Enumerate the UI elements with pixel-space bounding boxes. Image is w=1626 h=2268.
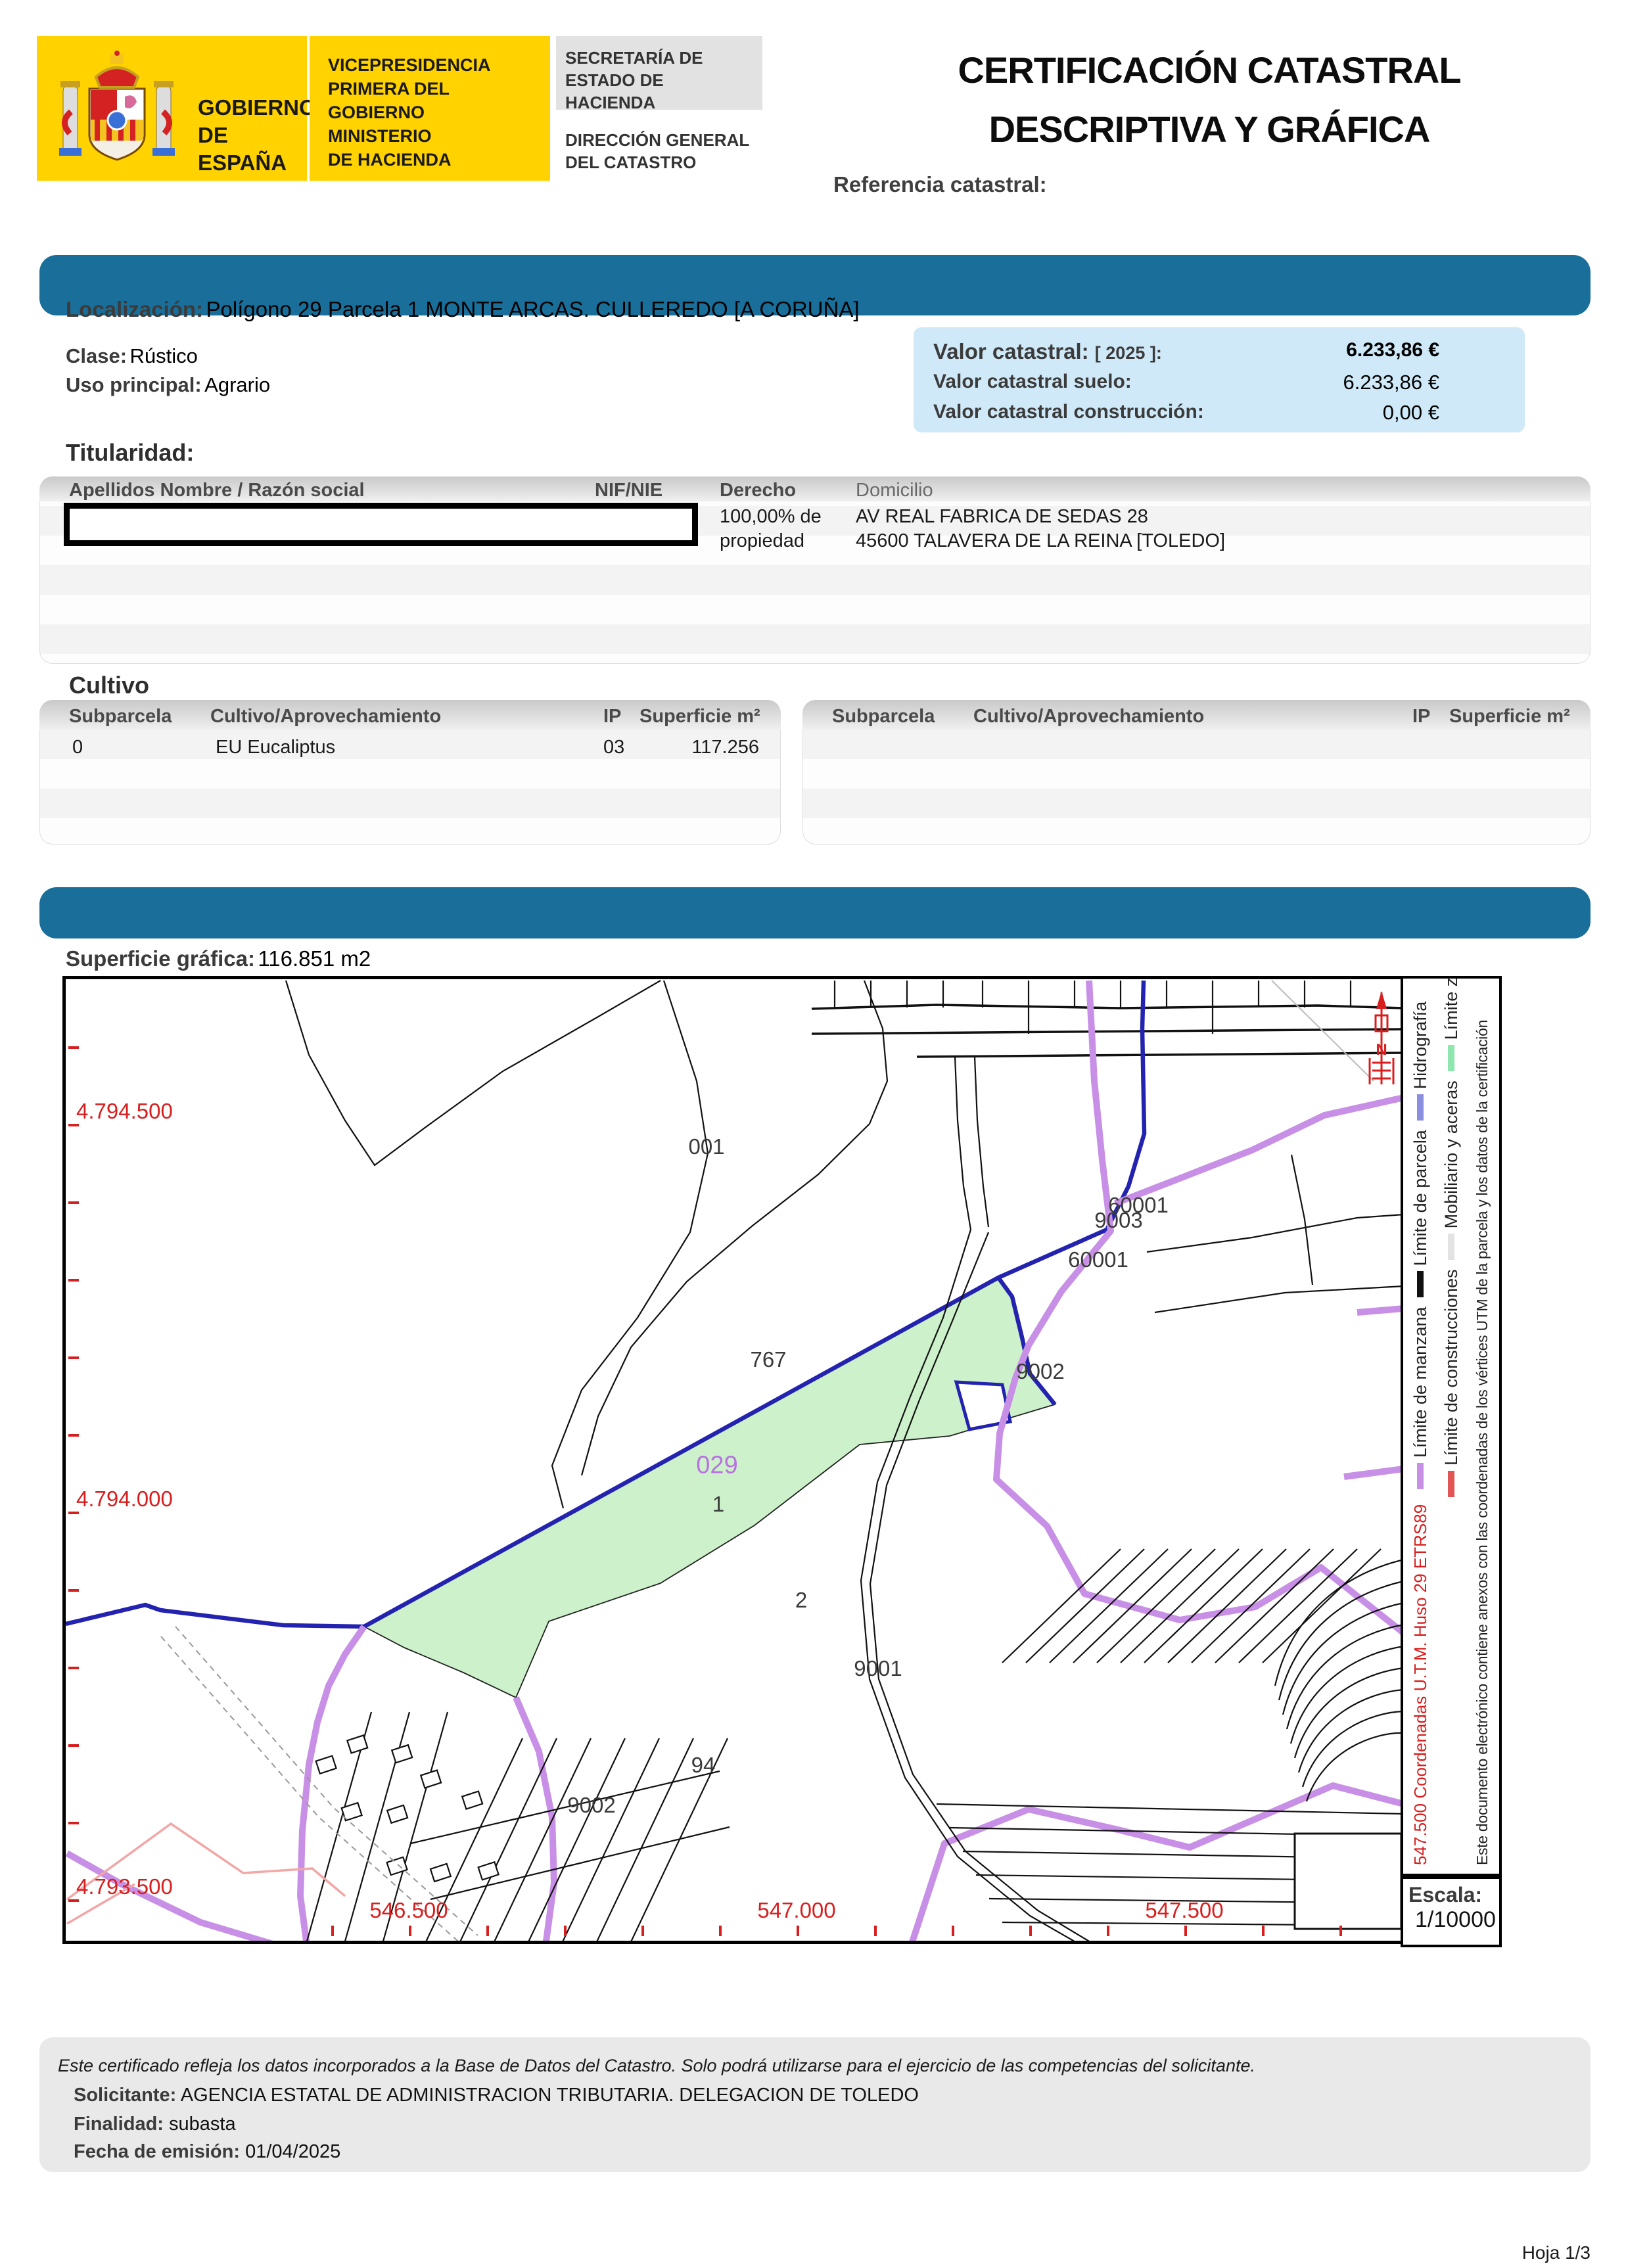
bottom-tick: [1184, 1926, 1187, 1936]
fecha-label: Fecha de emisión:: [74, 2141, 240, 2162]
legend-entry-label: Límite de parcela: [1410, 1130, 1431, 1266]
uso-value: Agrario: [204, 373, 270, 396]
direccion-text: DIRECCIÓN GENERAL DEL CATASTRO: [556, 118, 762, 184]
titularidad-title: Titularidad:: [66, 439, 194, 467]
valor-total: 6.233,86 €: [1346, 339, 1439, 361]
cultivo-table-right: Subparcela Cultivo/Aprovechamiento IP Su…: [802, 700, 1591, 845]
map-area: N 547.500 Coordenadas U.T.M. Huso 29 ETR…: [62, 976, 1502, 1944]
map-parcel-label: 001: [688, 1134, 724, 1159]
legend-swatch-icon: [1448, 1045, 1454, 1071]
cultivo-col-aprovechamiento: Cultivo/Aprovechamiento: [973, 706, 1204, 728]
map-parcel-label: 9001: [854, 1656, 902, 1681]
map-parcel-label: 1: [712, 1492, 724, 1517]
col-derecho: Derecho: [720, 480, 796, 501]
cultivo-col-subparcela: Subparcela: [69, 706, 172, 728]
legend-electronic-note: Este documento electrónico contiene anex…: [1474, 1020, 1491, 1865]
legend-swatch-icon: [1417, 1271, 1424, 1297]
cultivo-row-subparcela: 0: [72, 737, 83, 758]
left-tick: [68, 1279, 79, 1282]
cultivo-left-header: Subparcela Cultivo/Aprovechamiento IP Su…: [39, 700, 781, 730]
solicitante-value: AGENCIA ESTATAL DE ADMINISTRACION TRIBUT…: [181, 2085, 919, 2106]
cultivo-col-aprovechamiento: Cultivo/Aprovechamiento: [210, 706, 441, 728]
section-bar-map: [39, 887, 1591, 938]
col-domicilio: Domicilio: [856, 480, 933, 501]
uso-row: Uso principal: Agrario: [66, 373, 270, 397]
left-tick: [68, 1512, 79, 1514]
localizacion-value: Polígono 29 Parcela 1 MONTE ARCAS. CULLE…: [206, 297, 860, 321]
gobierno-logo-block: GOBIERNO DE ESPAÑA: [37, 36, 307, 181]
map-coordinate-label: 4.793.500: [76, 1874, 173, 1899]
titularidad-table: Apellidos Nombre / Razón social NIF/NIE …: [39, 476, 1591, 664]
cultivo-row-aprovechamiento: EU Eucaliptus: [216, 737, 335, 758]
secretaria-text: SECRETARÍA DE ESTADO DE HACIENDA: [556, 36, 762, 124]
valor-construccion: 0,00 €: [1383, 401, 1439, 425]
bottom-tick: [797, 1926, 799, 1936]
cultivo-col-superficie: Superficie m²: [1449, 706, 1570, 728]
map-coordinate-label: 547.500: [1145, 1898, 1223, 1923]
legend-entry-label: Límite de manzana: [1410, 1307, 1431, 1458]
legend-swatch-icon: [1417, 1094, 1424, 1121]
legend-entry: Límite de parcela: [1410, 1130, 1431, 1297]
derecho-line1: 100,00% de: [720, 506, 822, 528]
superficie-row: Superficie gráfica: 116.851 m2: [66, 946, 371, 971]
valor-catastral-box: Valor catastral: [ 2025 ]: 6.233,86 € Va…: [914, 327, 1525, 432]
finalidad-label: Finalidad:: [74, 2114, 164, 2135]
solicitante-label: Solicitante:: [74, 2085, 176, 2106]
north-arrow-icon: N: [1370, 991, 1393, 1084]
page-number: Hoja 1/3: [1492, 2242, 1591, 2263]
cultivo-row-ip: 03: [603, 737, 624, 758]
col-apellidos: Apellidos Nombre / Razón social: [69, 480, 365, 501]
titularidad-header-row: Apellidos Nombre / Razón social NIF/NIE …: [39, 476, 1591, 501]
legend-entry: Hidrografía: [1410, 1002, 1431, 1121]
footer-disclaimer: Este certificado refleja los datos incor…: [58, 2056, 1255, 2076]
cultivo-col-ip: IP: [603, 706, 621, 728]
legend-entry-label: Límite zona verde: [1441, 976, 1462, 1040]
map-parcel-label: 94: [691, 1753, 716, 1778]
valor-construccion-label: Valor catastral construcción:: [933, 401, 1204, 423]
col-nif: NIF/NIE: [595, 480, 662, 501]
uso-label: Uso principal:: [66, 373, 202, 396]
cultivo-col-subparcela: Subparcela: [832, 706, 935, 728]
bottom-tick: [1029, 1926, 1032, 1936]
map-parcel-label: 2: [795, 1588, 807, 1613]
localizacion-label: Localización:: [66, 297, 203, 321]
legend-utm-note: 547.500 Coordenadas U.T.M. Huso 29 ETRS8…: [1410, 1497, 1431, 1865]
svg-text:N: N: [1376, 1041, 1387, 1059]
fecha-value: 01/04/2025: [245, 2141, 340, 2162]
left-tick: [68, 1124, 79, 1126]
superficie-label: Superficie gráfica:: [66, 946, 255, 971]
derecho-line2: propiedad: [720, 530, 804, 552]
bottom-tick: [486, 1926, 489, 1936]
map-parcel-label: 767: [750, 1347, 786, 1372]
legend-entry: Mobiliario y aceras: [1441, 1080, 1462, 1260]
map-parcel-label: 60001: [1068, 1247, 1128, 1272]
bottom-tick: [1339, 1926, 1342, 1936]
spain-coat-of-arms-icon: [51, 49, 183, 171]
page-title: CERTIFICACIÓN CATASTRAL DESCRIPTIVA Y GR…: [818, 41, 1600, 159]
escala-label: Escala:: [1408, 1883, 1494, 1907]
bottom-tick: [1262, 1926, 1265, 1936]
left-tick: [68, 1589, 79, 1592]
direccion-block: DIRECCIÓN GENERAL DEL CATASTRO: [556, 118, 762, 181]
legend-swatch-icon: [1417, 1463, 1424, 1489]
left-tick: [68, 1822, 79, 1824]
referencia-catastral-label: Referencia catastral:: [833, 172, 1047, 197]
cultivo-right-header: Subparcela Cultivo/Aprovechamiento IP Su…: [802, 700, 1591, 730]
cultivo-col-superficie: Superficie m²: [639, 706, 760, 728]
map-parcel-label: 9002: [1016, 1359, 1064, 1384]
map-parcel-label: 9002: [567, 1793, 615, 1818]
bottom-tick: [641, 1926, 644, 1936]
valor-suelo: 6.233,86 €: [1343, 371, 1439, 394]
secretaria-block: SECRETARÍA DE ESTADO DE HACIENDA: [556, 36, 762, 110]
domicilio-line1: AV REAL FABRICA DE SEDAS 28: [856, 506, 1148, 528]
bottom-tick: [1107, 1926, 1109, 1936]
bottom-tick: [564, 1926, 567, 1936]
map-scale-box: Escala: 1/10000: [1401, 1876, 1502, 1947]
legend-entry-label: Hidrografía: [1410, 1002, 1431, 1090]
map-parcel-label: 9003: [1094, 1208, 1142, 1233]
left-tick: [68, 1667, 79, 1669]
legend-entry-label: Límite de construcciones: [1441, 1269, 1462, 1466]
valor-year: [ 2025 ]:: [1095, 343, 1162, 363]
legend-swatch-icon: [1448, 1234, 1454, 1260]
gobierno-text: GOBIERNO DE ESPAÑA: [198, 94, 316, 177]
bottom-tick: [409, 1926, 411, 1936]
ministerio-block: VICEPRESIDENCIA PRIMERA DEL GOBIERNO MIN…: [310, 36, 550, 181]
bottom-tick: [952, 1926, 954, 1936]
cultivo-table-left: Subparcela Cultivo/Aprovechamiento IP Su…: [39, 700, 781, 845]
bottom-tick: [331, 1926, 334, 1936]
cadastral-map: N: [66, 979, 1498, 1941]
clase-row: Clase: Rústico: [66, 344, 198, 368]
left-tick: [68, 1434, 79, 1437]
localizacion-row: Localización: Polígono 29 Parcela 1 MONT…: [66, 297, 860, 322]
valor-label: Valor catastral:: [933, 339, 1089, 363]
clase-label: Clase:: [66, 344, 127, 367]
map-coordinate-label: 546.500: [369, 1898, 448, 1923]
left-tick: [68, 1356, 79, 1359]
map-legend: 547.500 Coordenadas U.T.M. Huso 29 ETRS8…: [1401, 976, 1502, 1876]
map-coordinate-label: 547.000: [757, 1898, 835, 1923]
map-parcel-label: 029: [696, 1452, 737, 1480]
legend-entry: Límite de construcciones: [1441, 1269, 1462, 1497]
redacted-name-box: [64, 503, 698, 546]
left-tick: [68, 1899, 79, 1902]
clase-value: Rústico: [130, 344, 198, 367]
map-coordinate-label: 4.794.500: [76, 1099, 173, 1124]
catastral-certificate-page: GOBIERNO DE ESPAÑA VICEPRESIDENCIA PRIME…: [0, 0, 1626, 2268]
superficie-value: 116.851 m2: [258, 946, 371, 971]
legend-entry: Límite de manzana: [1410, 1307, 1431, 1489]
map-coordinate-label: 4.794.000: [76, 1487, 173, 1512]
legend-entry: Límite zona verde: [1441, 976, 1462, 1071]
finalidad-value: subasta: [169, 2114, 236, 2135]
left-tick: [68, 1744, 79, 1747]
escala-value: 1/10000: [1415, 1907, 1494, 1933]
left-tick: [68, 1046, 79, 1049]
bottom-tick: [874, 1926, 877, 1936]
legend-entry-label: Mobiliario y aceras: [1441, 1080, 1462, 1228]
cultivo-title: Cultivo: [69, 672, 149, 699]
cultivo-row-superficie: 117.256: [687, 737, 759, 758]
footer-box: Este certificado refleja los datos incor…: [39, 2037, 1591, 2172]
left-tick: [68, 1201, 79, 1204]
domicilio-line2: 45600 TALAVERA DE LA REINA [TOLEDO]: [856, 530, 1225, 552]
cultivo-col-ip: IP: [1412, 706, 1430, 728]
valor-suelo-label: Valor catastral suelo:: [933, 371, 1132, 392]
legend-swatch-icon: [1448, 1471, 1454, 1497]
bottom-tick: [719, 1926, 722, 1936]
